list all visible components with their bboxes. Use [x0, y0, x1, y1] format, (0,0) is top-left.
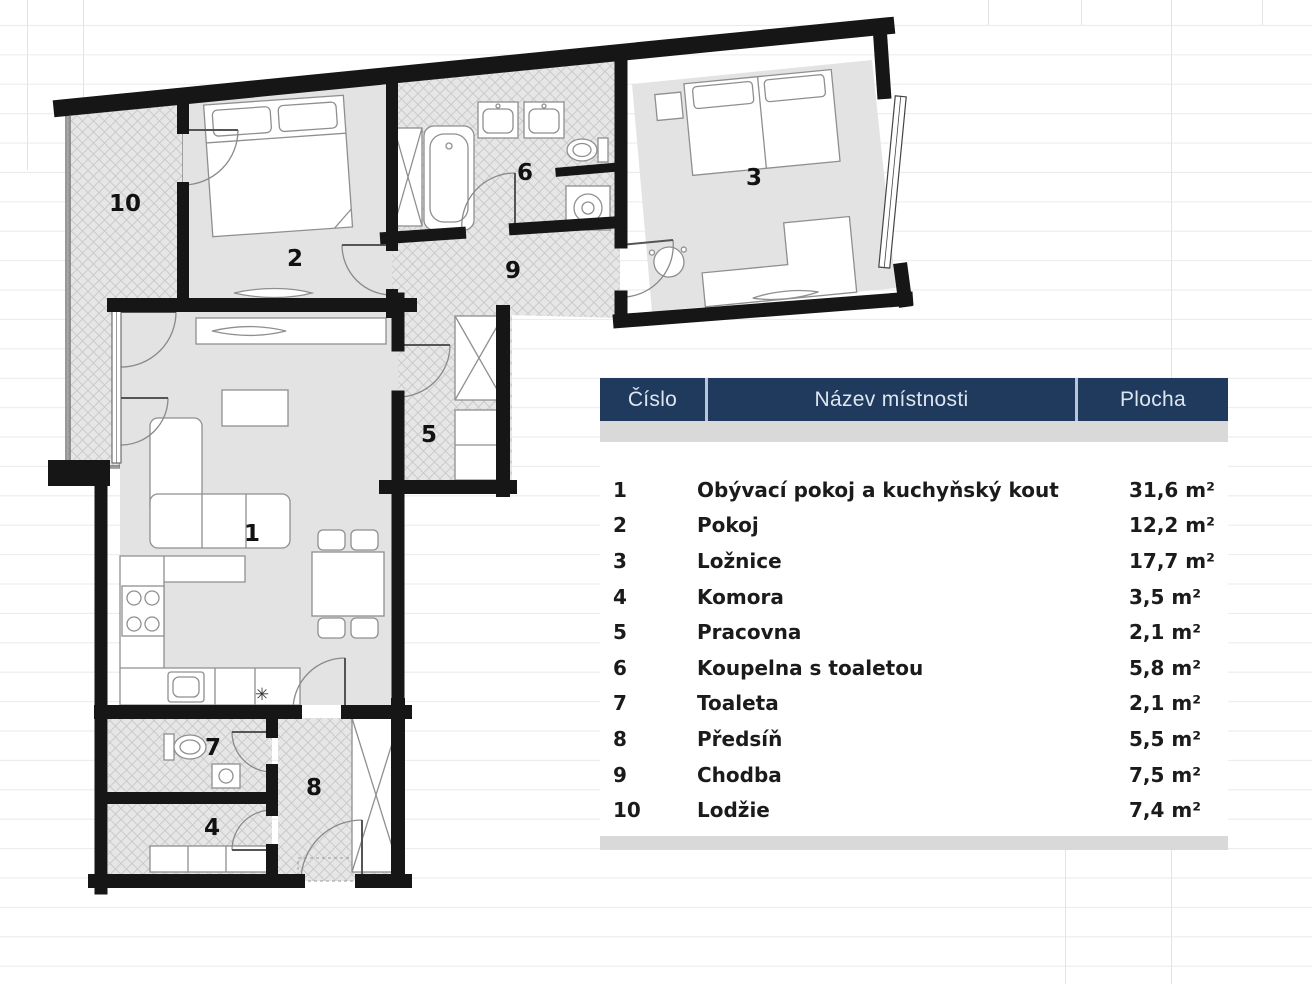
row-number: 1	[600, 478, 697, 502]
table-row: 5 Pracovna 2,1 m²	[600, 614, 1228, 650]
row-number: 4	[600, 585, 697, 609]
table-row: 9 Chodba 7,5 m²	[600, 757, 1228, 793]
row-number: 3	[600, 549, 697, 573]
chair	[351, 618, 378, 638]
dishwasher-symbol: ✳	[255, 685, 269, 705]
table-rows: 1 Obývací pokoj a kuchyňský kout 31,6 m²…	[600, 472, 1228, 828]
table-row: 1 Obývací pokoj a kuchyňský kout 31,6 m²	[600, 472, 1228, 508]
row-area: 5,5 m²	[1129, 727, 1228, 751]
row-name: Pokoj	[697, 513, 1129, 537]
room-table: Číslo Název místnosti Plocha 1 Obývací p…	[600, 378, 1228, 850]
row-area: 31,6 m²	[1129, 478, 1228, 502]
room-label-6: 6	[517, 160, 533, 186]
row-name: Lodžie	[697, 798, 1129, 822]
room-label-5: 5	[421, 422, 437, 448]
row-number: 10	[600, 798, 697, 822]
row-name: Toaleta	[697, 691, 1129, 715]
row-number: 9	[600, 763, 697, 787]
table-row: 8 Předsíň 5,5 m²	[600, 721, 1228, 757]
toilet	[174, 735, 206, 759]
row-name: Chodba	[697, 763, 1129, 787]
row-area: 7,4 m²	[1129, 798, 1228, 822]
row-area: 2,1 m²	[1129, 620, 1228, 644]
room-label-1: 1	[244, 521, 260, 547]
table-band-top	[600, 421, 1228, 442]
table-band-bottom	[600, 836, 1228, 850]
row-area: 2,1 m²	[1129, 691, 1228, 715]
row-number: 8	[600, 727, 697, 751]
row-area: 17,7 m²	[1129, 549, 1228, 573]
row-name: Obývací pokoj a kuchyňský kout	[697, 478, 1129, 502]
room-label-7: 7	[205, 735, 221, 761]
room-label-4: 4	[204, 815, 220, 841]
row-area: 12,2 m²	[1129, 513, 1228, 537]
table-header: Číslo Název místnosti Plocha	[600, 378, 1228, 421]
room-label-9: 9	[505, 258, 521, 284]
page: 1 2 3 4 5 6 7 8 9 10 ✳ Číslo Název místn…	[0, 0, 1312, 984]
row-name: Předsíň	[697, 727, 1129, 751]
toilet-tank	[164, 734, 174, 760]
header-name: Název místnosti	[708, 378, 1075, 421]
bed	[204, 95, 353, 236]
toilet-tank	[598, 138, 608, 162]
row-area: 7,5 m²	[1129, 763, 1228, 787]
row-number: 7	[600, 691, 697, 715]
table-row: 4 Komora 3,5 m²	[600, 579, 1228, 615]
room-label-2: 2	[287, 246, 303, 272]
wall-cap	[48, 460, 110, 486]
nightstand	[655, 92, 683, 120]
coffee-table	[222, 390, 288, 426]
table-row: 6 Koupelna s toaletou 5,8 m²	[600, 650, 1228, 686]
row-area: 5,8 m²	[1129, 656, 1228, 680]
table-row: 2 Pokoj 12,2 m²	[600, 508, 1228, 544]
room-label-8: 8	[306, 775, 322, 801]
table-row: 10 Lodžie 7,4 m²	[600, 792, 1228, 828]
row-name: Pracovna	[697, 620, 1129, 644]
chair	[318, 530, 345, 550]
header-area: Plocha	[1078, 378, 1228, 421]
row-number: 5	[600, 620, 697, 644]
row-number: 6	[600, 656, 697, 680]
row-name: Komora	[697, 585, 1129, 609]
table-row: 7 Toaleta 2,1 m²	[600, 686, 1228, 722]
room-label-3: 3	[746, 165, 762, 191]
bath-toilet	[567, 139, 597, 161]
header-number: Číslo	[600, 378, 705, 421]
chair	[318, 618, 345, 638]
small-sink	[212, 764, 240, 788]
table-row: 3 Ložnice 17,7 m²	[600, 543, 1228, 579]
row-area: 3,5 m²	[1129, 585, 1228, 609]
dining-table	[312, 552, 384, 616]
sofa	[150, 494, 290, 548]
row-name: Ložnice	[697, 549, 1129, 573]
row-name: Koupelna s toaletou	[697, 656, 1129, 680]
row-number: 2	[600, 513, 697, 537]
chair	[351, 530, 378, 550]
room-label-10: 10	[109, 191, 141, 217]
